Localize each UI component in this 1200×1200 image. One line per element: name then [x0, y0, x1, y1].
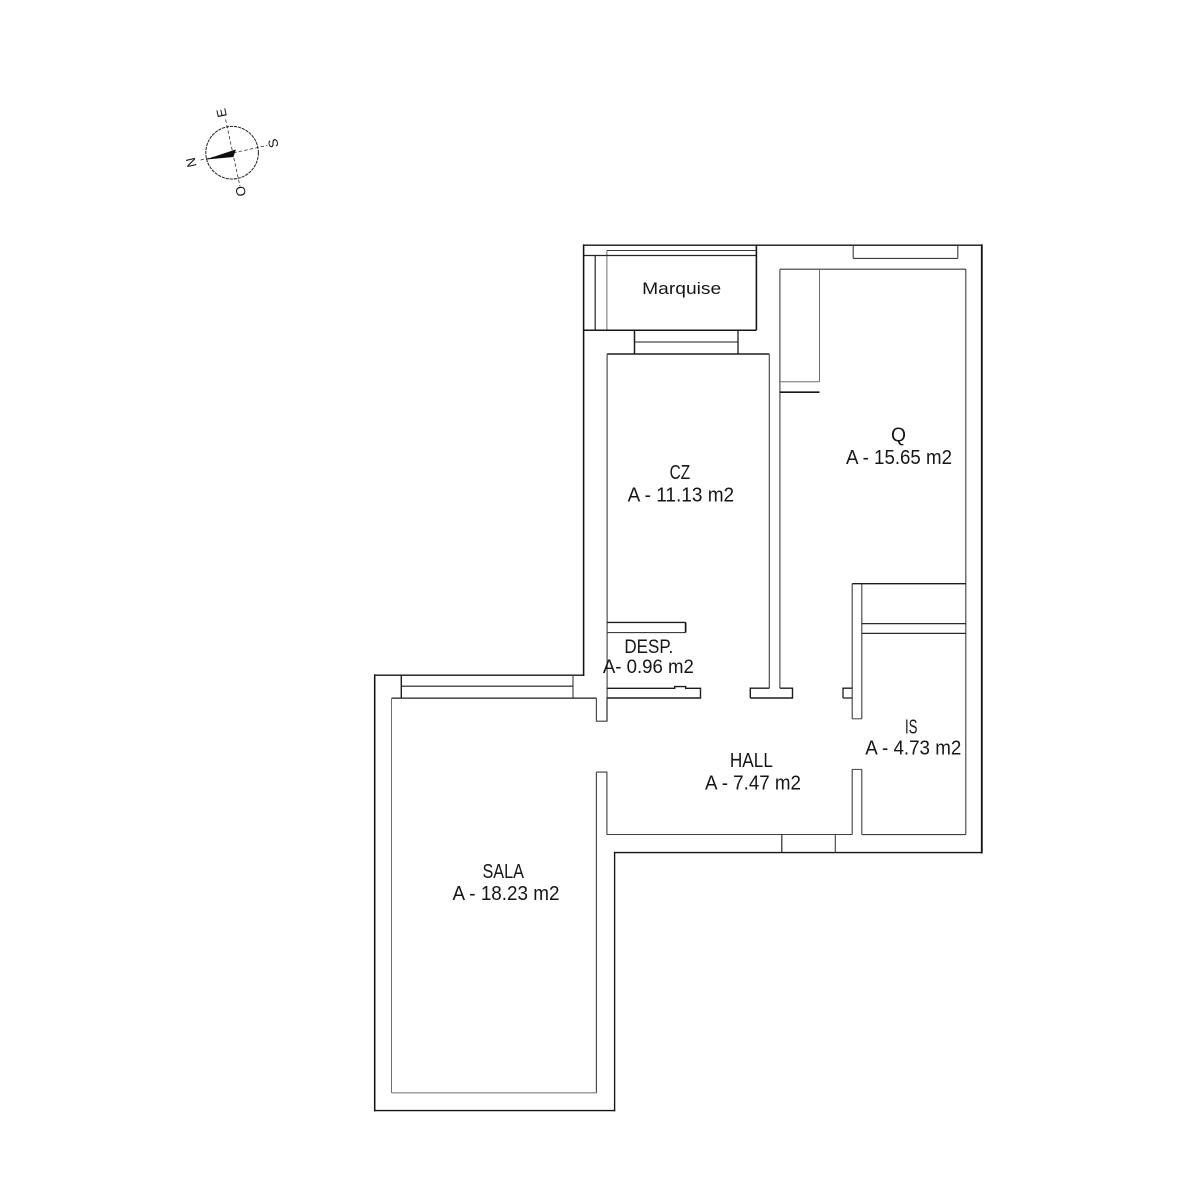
svg-text:SALA: SALA [482, 861, 524, 883]
svg-text:A - 18.23 m2: A - 18.23 m2 [453, 883, 560, 905]
svg-text:A- 0.96 m2: A- 0.96 m2 [603, 656, 694, 678]
svg-text:A - 15.65 m2: A - 15.65 m2 [846, 447, 952, 469]
svg-text:N: N [183, 156, 200, 169]
svg-text:E: E [213, 107, 230, 119]
svg-text:A - 7.47 m2: A - 7.47 m2 [705, 772, 801, 794]
svg-text:Marquise: Marquise [642, 280, 721, 298]
svg-text:A - 4.73 m2: A - 4.73 m2 [865, 738, 961, 760]
svg-text:O: O [232, 185, 249, 198]
svg-text:Q: Q [891, 425, 906, 447]
svg-text:CZ: CZ [670, 462, 691, 484]
svg-text:HALL: HALL [730, 750, 773, 772]
svg-text:A - 11.13 m2: A - 11.13 m2 [628, 485, 735, 507]
svg-text:IS: IS [905, 716, 918, 738]
svg-text:DESP.: DESP. [624, 636, 673, 658]
svg-text:S: S [265, 137, 282, 149]
